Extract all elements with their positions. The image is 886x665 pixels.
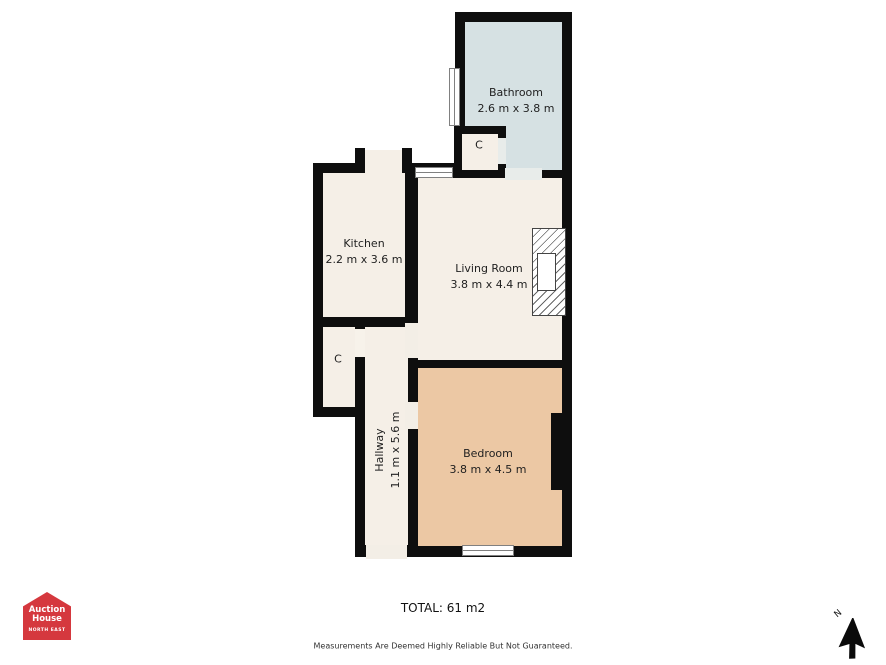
living-room-label: Living Room 3.8 m x 4.4 m <box>451 261 528 293</box>
fireplace <box>532 228 566 316</box>
north-arrow-icon <box>838 618 872 662</box>
living-room-name: Living Room <box>451 261 528 277</box>
fireplace-hearth <box>537 253 556 291</box>
window-pane-line <box>463 550 513 551</box>
north-compass: N <box>830 606 878 664</box>
hallway-closet-door-gap <box>355 329 365 357</box>
hallway-label: Hallway 1.1 m x 5.6 m <box>372 412 404 489</box>
bedroom-door-gap <box>405 402 418 429</box>
kitchen-label: Kitchen 2.2 m x 3.6 m <box>326 236 403 268</box>
logo-text: Auction House <box>23 606 71 624</box>
auction-house-logo: Auction House NORTH EAST <box>23 592 71 640</box>
bathroom-label: Bathroom 2.6 m x 3.8 m <box>478 85 555 117</box>
hallway-closet <box>323 327 355 407</box>
hallway-closet-label: C <box>334 353 342 366</box>
bedroom-label: Bedroom 3.8 m x 4.5 m <box>450 446 527 478</box>
bathroom-door-gap <box>505 168 542 180</box>
bedroom-name: Bedroom <box>450 446 527 462</box>
wall-entry-stub-left <box>355 148 365 164</box>
entry-alcove <box>365 150 402 178</box>
floor-plan: Bathroom 2.6 m x 3.8 m Kitchen 2.2 m x 3… <box>0 0 886 665</box>
living-room-dims: 3.8 m x 4.4 m <box>451 277 528 293</box>
total-area-label: TOTAL: 61 m2 <box>401 601 485 615</box>
logo-line2: House <box>23 615 71 624</box>
window-pane-line <box>416 172 452 173</box>
window-pane-line <box>454 69 455 125</box>
kitchen-name: Kitchen <box>326 236 403 252</box>
front-door-gap <box>366 545 407 559</box>
bathroom-window <box>449 68 460 126</box>
hallway-dims: 1.1 m x 5.6 m <box>388 412 404 489</box>
bathroom-closet-door-gap <box>498 138 506 164</box>
bathroom-dims: 2.6 m x 3.8 m <box>478 101 555 117</box>
living-room-window <box>415 167 453 178</box>
wall-entry-stub-right <box>402 148 412 164</box>
hallway-name: Hallway <box>372 412 388 489</box>
logo-region-text: NORTH EAST <box>23 628 71 633</box>
bathroom-closet-label: C <box>475 139 483 152</box>
bedroom-window <box>462 545 514 556</box>
kitchen-dims: 2.2 m x 3.6 m <box>326 252 403 268</box>
chimney-breast <box>551 413 563 490</box>
bedroom-dims: 3.8 m x 4.5 m <box>450 462 527 478</box>
disclaimer-text: Measurements Are Deemed Highly Reliable … <box>314 642 573 651</box>
bathroom-name: Bathroom <box>478 85 555 101</box>
living-room-door-gap <box>405 323 418 358</box>
